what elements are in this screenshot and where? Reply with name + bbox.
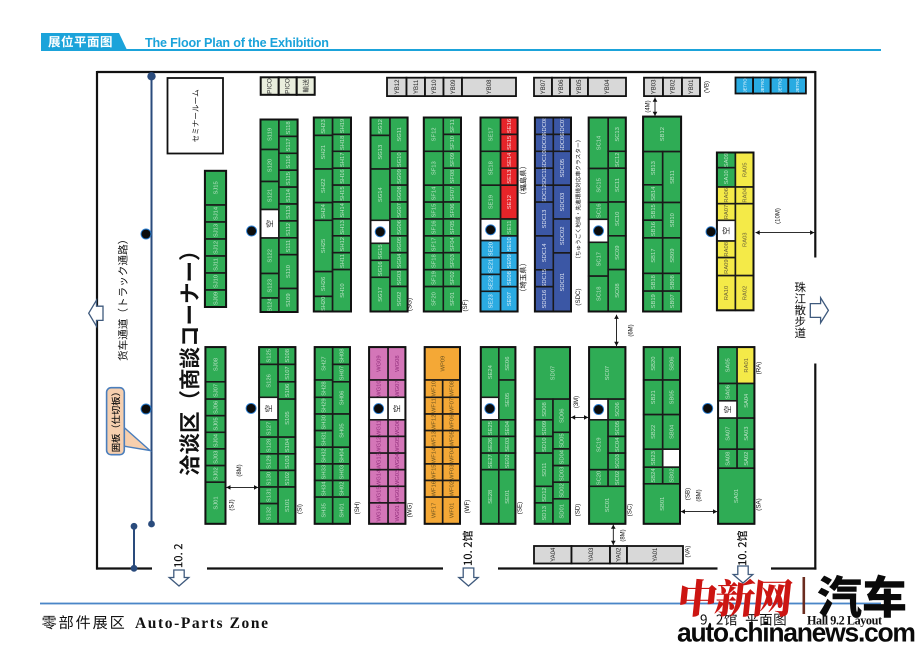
svg-text:(SJ): (SJ) xyxy=(229,499,236,510)
svg-text:SH12: SH12 xyxy=(340,237,346,252)
svg-text:S104: S104 xyxy=(285,438,291,452)
svg-text:SF07: SF07 xyxy=(450,187,456,201)
svg-text:S126: S126 xyxy=(267,374,273,388)
svg-text:JETRO: JETRO xyxy=(742,78,747,93)
svg-text:WG14: WG14 xyxy=(377,469,383,486)
svg-text:YB12: YB12 xyxy=(395,79,401,94)
svg-text:SH29: SH29 xyxy=(322,398,328,413)
svg-text:SF16: SF16 xyxy=(432,220,438,234)
svg-text:SB17: SB17 xyxy=(651,249,657,263)
svg-text:SDC05: SDC05 xyxy=(560,159,566,178)
svg-text:SH14: SH14 xyxy=(340,202,346,217)
svg-text:WF14: WF14 xyxy=(432,447,438,463)
svg-text:WF15: WF15 xyxy=(432,464,438,479)
svg-text:SE08: SE08 xyxy=(507,271,513,285)
svg-text:SG12: SG12 xyxy=(378,119,384,134)
svg-text:SF04: SF04 xyxy=(450,236,456,251)
svg-text:(SF): (SF) xyxy=(462,299,469,311)
svg-text:WG09: WG09 xyxy=(377,355,383,371)
svg-text:S112: S112 xyxy=(286,223,292,236)
svg-text:S122: S122 xyxy=(268,249,274,263)
svg-text:SC04: SC04 xyxy=(615,437,621,452)
svg-text:WG04: WG04 xyxy=(395,452,401,469)
svg-text:S101: S101 xyxy=(285,499,291,513)
svg-text:SG13: SG13 xyxy=(378,145,384,160)
svg-text:S124: S124 xyxy=(268,297,274,311)
svg-text:S128: S128 xyxy=(267,439,273,453)
svg-text:SF03: SF03 xyxy=(450,254,456,268)
svg-text:SA04: SA04 xyxy=(744,393,750,408)
svg-text:SH10: SH10 xyxy=(340,283,346,298)
svg-text:SDC07: SDC07 xyxy=(560,117,566,136)
svg-text:(SC): (SC) xyxy=(627,504,634,517)
svg-text:SD11: SD11 xyxy=(542,463,548,477)
svg-text:SDC10: SDC10 xyxy=(542,150,548,169)
svg-text:SC15: SC15 xyxy=(597,178,603,193)
svg-text:SJ07: SJ07 xyxy=(213,384,219,397)
svg-text:SJ09: SJ09 xyxy=(214,292,220,305)
svg-text:S114: S114 xyxy=(286,188,292,202)
svg-text:WF10: WF10 xyxy=(432,381,438,396)
svg-text:WF13: WF13 xyxy=(432,431,438,446)
svg-text:WG15: WG15 xyxy=(377,486,383,502)
svg-text:SC07: SC07 xyxy=(605,366,611,381)
svg-text:SB09: SB09 xyxy=(670,249,676,263)
svg-text:SF14: SF14 xyxy=(432,186,438,201)
svg-text:SD10: SD10 xyxy=(542,438,548,453)
svg-text:(SG): (SG) xyxy=(407,298,414,311)
svg-text:SH01: SH01 xyxy=(339,503,345,518)
svg-text:SC08: SC08 xyxy=(615,283,621,298)
svg-text:SE20: SE20 xyxy=(489,242,495,256)
svg-text:SJ04: SJ04 xyxy=(213,433,219,447)
svg-text:S103: S103 xyxy=(285,455,291,469)
svg-text:WP09: WP09 xyxy=(440,356,446,372)
svg-text:RA06: RA06 xyxy=(724,188,730,203)
svg-text:S119: S119 xyxy=(268,128,274,141)
svg-text:SH20: SH20 xyxy=(321,297,327,312)
svg-text:SB16: SB16 xyxy=(651,222,657,236)
svg-text:SD07: SD07 xyxy=(550,366,556,381)
svg-text:S109: S109 xyxy=(286,293,292,307)
svg-text:YA03: YA03 xyxy=(589,547,595,562)
svg-text:SG02: SG02 xyxy=(397,292,403,307)
svg-text:SE07: SE07 xyxy=(507,292,513,306)
svg-text:(WG): (WG) xyxy=(407,503,414,518)
svg-text:SH24: SH24 xyxy=(321,203,327,218)
svg-text:SH03: SH03 xyxy=(339,465,345,480)
svg-text:SC10: SC10 xyxy=(615,212,621,227)
svg-text:SD05: SD05 xyxy=(560,433,566,448)
svg-text:S102: S102 xyxy=(285,472,291,486)
svg-text:SF15: SF15 xyxy=(432,204,438,218)
svg-text:(6M): (6M) xyxy=(629,324,635,336)
svg-text:SD06: SD06 xyxy=(560,408,566,423)
svg-text:SE14: SE14 xyxy=(507,152,513,167)
svg-text:SG11: SG11 xyxy=(397,127,403,141)
svg-text:SJ11: SJ11 xyxy=(214,258,220,271)
svg-text:SE12: SE12 xyxy=(507,195,513,209)
svg-text:SH17: SH17 xyxy=(340,153,346,168)
svg-text:SB10: SB10 xyxy=(670,213,676,227)
svg-text:SE23: SE23 xyxy=(489,294,495,308)
svg-text:SG06: SG06 xyxy=(397,220,403,235)
svg-text:SH32: SH32 xyxy=(322,448,328,463)
svg-text:WF04: WF04 xyxy=(449,447,455,463)
svg-text:Auto-Parts Zone: Auto-Parts Zone xyxy=(135,615,268,632)
svg-text:SA02: SA02 xyxy=(744,452,750,466)
svg-text:SH11: SH11 xyxy=(340,254,346,268)
svg-text:(4M): (4M) xyxy=(646,100,652,112)
svg-text:S131: S131 xyxy=(267,489,273,503)
svg-text:S117: S117 xyxy=(286,138,292,151)
svg-text:S111: S111 xyxy=(286,240,292,253)
svg-text:SH30: SH30 xyxy=(322,415,328,430)
svg-text:SJ05: SJ05 xyxy=(213,417,219,430)
svg-text:(SA): (SA) xyxy=(756,498,763,510)
svg-text:WG03: WG03 xyxy=(395,470,401,486)
svg-text:SB07: SB07 xyxy=(670,294,676,308)
svg-text:S106: S106 xyxy=(285,384,291,398)
svg-text:YB03: YB03 xyxy=(652,79,658,94)
svg-text:SG17: SG17 xyxy=(378,287,384,302)
svg-text:RA08: RA08 xyxy=(724,242,730,257)
svg-text:(SDC): (SDC) xyxy=(575,288,582,305)
svg-text:SA05: SA05 xyxy=(726,358,732,372)
svg-text:SH21: SH21 xyxy=(321,145,327,160)
svg-text:SC20: SC20 xyxy=(597,471,603,486)
svg-text:SH22: SH22 xyxy=(321,179,327,194)
svg-text:RA05: RA05 xyxy=(743,163,749,178)
svg-text:(SH): (SH) xyxy=(354,502,361,515)
svg-text:SA10: SA10 xyxy=(724,170,730,184)
svg-text:S121: S121 xyxy=(268,189,274,203)
svg-text:SF10: SF10 xyxy=(450,136,456,150)
svg-text:SB23: SB23 xyxy=(651,451,657,465)
svg-text:SB21: SB21 xyxy=(651,390,657,404)
svg-text:SH06: SH06 xyxy=(339,391,345,406)
svg-text:SG05: SG05 xyxy=(397,237,403,252)
svg-text:SE09: SE09 xyxy=(507,254,513,268)
svg-text:SDC15: SDC15 xyxy=(542,269,548,288)
svg-text:SH18: SH18 xyxy=(340,136,346,151)
svg-text:SE18: SE18 xyxy=(489,161,495,175)
svg-text:S125: S125 xyxy=(267,349,273,363)
svg-text:SB13: SB13 xyxy=(651,161,657,175)
svg-text:SH07: SH07 xyxy=(339,366,345,381)
svg-text:JETRO: JETRO xyxy=(778,78,783,93)
svg-text:SB19: SB19 xyxy=(651,294,657,308)
svg-text:SA08: SA08 xyxy=(726,452,732,466)
svg-text:RA02: RA02 xyxy=(743,286,749,301)
svg-text:SE01: SE01 xyxy=(505,490,511,504)
svg-text:PICO: PICO xyxy=(267,78,274,94)
svg-text:SC17: SC17 xyxy=(597,252,603,267)
svg-text:S130: S130 xyxy=(267,472,273,486)
svg-text:SC13: SC13 xyxy=(615,127,621,142)
svg-text:SH35: SH35 xyxy=(322,503,328,518)
svg-text:SJ14: SJ14 xyxy=(214,206,220,220)
svg-text:SA09: SA09 xyxy=(724,153,730,167)
svg-text:SC11: SC11 xyxy=(615,178,621,192)
svg-text:WG08: WG08 xyxy=(395,355,401,371)
svg-text:(SE): (SE) xyxy=(517,502,524,514)
svg-text:SH19: SH19 xyxy=(340,119,346,134)
svg-text:SDC12: SDC12 xyxy=(542,184,548,203)
svg-text:SH05: SH05 xyxy=(339,423,345,438)
svg-text:SDC16: SDC16 xyxy=(542,290,548,309)
svg-text:SD04: SD04 xyxy=(560,449,566,464)
svg-text:SDC09: SDC09 xyxy=(542,134,548,153)
svg-text:SA06: SA06 xyxy=(726,385,732,399)
svg-text:SD01: SD01 xyxy=(560,504,566,519)
svg-text:SH15: SH15 xyxy=(340,186,346,201)
svg-text:SE24: SE24 xyxy=(488,364,494,379)
svg-text:SC09: SC09 xyxy=(615,245,621,260)
svg-text:SDC11: SDC11 xyxy=(542,168,548,186)
svg-text:SE04: SE04 xyxy=(505,420,511,435)
svg-text:(8M): (8M) xyxy=(697,489,703,501)
svg-text:SB02: SB02 xyxy=(669,468,675,482)
svg-text:SB04: SB04 xyxy=(669,424,675,439)
svg-text:SDC02: SDC02 xyxy=(560,227,566,246)
svg-text:RA01: RA01 xyxy=(744,358,750,373)
svg-text:(RA): (RA) xyxy=(756,362,763,375)
svg-text:YB11: YB11 xyxy=(414,79,420,94)
svg-text:YA01: YA01 xyxy=(653,547,659,562)
svg-text:SH16: SH16 xyxy=(340,169,346,184)
svg-text:S107: S107 xyxy=(285,366,291,380)
svg-text:SB15: SB15 xyxy=(651,204,657,218)
svg-text:WF12: WF12 xyxy=(432,415,438,430)
svg-text:WF06: WF06 xyxy=(449,415,455,430)
svg-text:SB08: SB08 xyxy=(670,275,676,289)
svg-text:SF06: SF06 xyxy=(450,203,456,217)
svg-text:SJ06: SJ06 xyxy=(213,401,219,414)
svg-text:SH28: SH28 xyxy=(322,381,328,396)
svg-text:SF09: SF09 xyxy=(450,153,456,167)
svg-text:YB09: YB09 xyxy=(451,79,457,94)
svg-text:SB05: SB05 xyxy=(669,390,675,404)
svg-text:SC03: SC03 xyxy=(615,454,621,469)
svg-text:SE15: SE15 xyxy=(507,136,513,150)
svg-text:SDC06: SDC06 xyxy=(560,134,566,153)
svg-text:SD13: SD13 xyxy=(542,506,548,521)
svg-text:RA07: RA07 xyxy=(724,205,730,220)
svg-text:SD08: SD08 xyxy=(542,402,548,417)
svg-text:WF08: WF08 xyxy=(449,381,455,396)
svg-text:SC16: SC16 xyxy=(597,204,603,219)
svg-text:SF20: SF20 xyxy=(432,292,438,306)
svg-text:SH27: SH27 xyxy=(322,356,328,371)
svg-text:SH34: SH34 xyxy=(322,481,328,496)
svg-text:S116: S116 xyxy=(286,155,292,168)
svg-text:SE11: SE11 xyxy=(507,221,513,235)
svg-text:SC19: SC19 xyxy=(597,438,603,453)
svg-text:WG01: WG01 xyxy=(395,505,401,521)
svg-text:RA03: RA03 xyxy=(743,232,749,247)
svg-text:(3M): (3M) xyxy=(574,396,580,408)
svg-text:SDC01: SDC01 xyxy=(560,273,566,292)
svg-text:WF02: WF02 xyxy=(449,481,455,496)
svg-text:S113: S113 xyxy=(286,206,292,219)
svg-text:WG10: WG10 xyxy=(377,380,383,396)
svg-text:SJ12: SJ12 xyxy=(214,241,220,254)
svg-text:SJ08: SJ08 xyxy=(213,358,219,371)
svg-text:WF16: WF16 xyxy=(432,481,438,496)
svg-text:SC05: SC05 xyxy=(615,421,621,436)
svg-text:SB24: SB24 xyxy=(651,468,657,483)
svg-text:SG03: SG03 xyxy=(397,271,403,286)
svg-text:SG16: SG16 xyxy=(378,261,384,276)
svg-text:SB18: SB18 xyxy=(651,275,657,289)
svg-text:SH13: SH13 xyxy=(340,220,346,235)
svg-text:(8M): (8M) xyxy=(621,529,627,541)
svg-text:SE27: SE27 xyxy=(488,454,494,468)
svg-text:SDC13: SDC13 xyxy=(542,210,548,229)
svg-text:SE05: SE05 xyxy=(505,393,511,407)
svg-text:SD09: SD09 xyxy=(542,421,548,436)
svg-text:SB01: SB01 xyxy=(660,497,666,511)
svg-text:YB07: YB07 xyxy=(541,79,547,94)
svg-text:S132: S132 xyxy=(267,507,273,521)
svg-text:SG10: SG10 xyxy=(397,152,403,167)
svg-text:SG14: SG14 xyxy=(378,187,384,203)
svg-text:SA03: SA03 xyxy=(744,427,750,441)
svg-text:SE19: SE19 xyxy=(489,195,495,209)
svg-text:SB14: SB14 xyxy=(651,186,657,201)
svg-text:WG11: WG11 xyxy=(377,420,383,436)
svg-text:SD03: SD03 xyxy=(560,467,566,482)
svg-text:RA04: RA04 xyxy=(743,187,749,202)
svg-text:SG09: SG09 xyxy=(397,169,403,184)
svg-text:YB08: YB08 xyxy=(487,79,493,94)
svg-text:SA07: SA07 xyxy=(726,427,732,441)
svg-text:SG04: SG04 xyxy=(397,253,403,269)
svg-text:SB11: SB11 xyxy=(670,170,676,184)
svg-text:SH23: SH23 xyxy=(321,119,327,134)
svg-text:SC01: SC01 xyxy=(605,498,611,513)
svg-text:SB12: SB12 xyxy=(660,127,666,141)
svg-text:WF05: WF05 xyxy=(449,431,455,446)
svg-text:WG06: WG06 xyxy=(395,420,401,436)
svg-text:SE17: SE17 xyxy=(489,127,495,141)
svg-text:JETRO: JETRO xyxy=(760,78,765,93)
svg-text:SJ03: SJ03 xyxy=(213,451,219,464)
svg-text:SB22: SB22 xyxy=(651,425,657,439)
svg-text:SE06: SE06 xyxy=(505,357,511,371)
svg-text:SH31: SH31 xyxy=(322,432,328,447)
svg-text:SF19: SF19 xyxy=(432,271,438,285)
svg-text:S120: S120 xyxy=(268,159,274,173)
svg-text:SF01: SF01 xyxy=(450,292,456,306)
svg-text:YA02: YA02 xyxy=(617,547,623,562)
svg-text:SF13: SF13 xyxy=(432,161,438,175)
svg-text:WG13: WG13 xyxy=(377,453,383,469)
svg-text:The Floor Plan of the Exhibiti: The Floor Plan of the Exhibition xyxy=(145,36,329,50)
svg-text:SE21: SE21 xyxy=(489,259,495,273)
svg-text:SH33: SH33 xyxy=(322,465,328,480)
svg-text:SE25: SE25 xyxy=(488,421,494,435)
svg-text:RA10: RA10 xyxy=(724,286,730,301)
svg-text:WF11: WF11 xyxy=(432,398,438,413)
svg-text:SD02: SD02 xyxy=(560,483,566,498)
svg-text:SH26: SH26 xyxy=(321,277,327,292)
svg-text:SE02: SE02 xyxy=(505,454,511,468)
svg-text:SF08: SF08 xyxy=(450,170,456,184)
svg-text:(8M): (8M) xyxy=(237,464,243,476)
svg-text:SH25: SH25 xyxy=(321,239,327,254)
svg-text:S118: S118 xyxy=(286,121,292,134)
svg-text:SC02: SC02 xyxy=(615,471,621,486)
svg-text:SD12: SD12 xyxy=(542,487,548,502)
svg-text:SE22: SE22 xyxy=(489,276,495,290)
svg-text:SG08: SG08 xyxy=(397,186,403,201)
svg-text:SB20: SB20 xyxy=(651,357,657,371)
svg-text:SF02: SF02 xyxy=(450,271,456,285)
svg-text:WG05: WG05 xyxy=(395,437,401,453)
svg-text:SC18: SC18 xyxy=(597,287,603,302)
svg-text:SJ01: SJ01 xyxy=(213,496,219,509)
svg-text:SG15: SG15 xyxy=(378,244,384,259)
svg-text:SE28: SE28 xyxy=(488,490,494,504)
svg-text:S115: S115 xyxy=(286,172,292,185)
svg-text:WG02: WG02 xyxy=(395,486,401,502)
svg-text:SDC08: SDC08 xyxy=(542,117,548,136)
svg-text:SC12: SC12 xyxy=(615,153,621,168)
svg-text:S123: S123 xyxy=(268,279,274,293)
svg-text:(10M): (10M) xyxy=(776,208,782,224)
svg-text:WF17: WF17 xyxy=(432,503,438,518)
svg-text:YA04: YA04 xyxy=(551,547,557,562)
svg-text:SE13: SE13 xyxy=(507,170,513,184)
svg-text:SE16: SE16 xyxy=(507,119,513,133)
svg-text:SG07: SG07 xyxy=(397,203,403,218)
svg-text:S105: S105 xyxy=(285,411,291,425)
svg-text:auto.chinanews.com: auto.chinanews.com xyxy=(677,618,916,648)
svg-text:SH04: SH04 xyxy=(339,447,345,462)
svg-text:SA01: SA01 xyxy=(734,489,740,503)
svg-text:(SD): (SD) xyxy=(575,504,582,517)
svg-text:WF07: WF07 xyxy=(449,398,455,413)
svg-text:(VB): (VB) xyxy=(705,81,711,93)
svg-text:YB06: YB06 xyxy=(559,79,565,94)
svg-text:SJ10: SJ10 xyxy=(214,275,220,288)
svg-text:RA09: RA09 xyxy=(724,259,730,274)
svg-text:S129: S129 xyxy=(267,455,273,469)
svg-text:SB06: SB06 xyxy=(669,357,675,371)
svg-text:YB05: YB05 xyxy=(577,79,583,94)
svg-text:WF01: WF01 xyxy=(449,503,455,518)
svg-text:PICO: PICO xyxy=(285,78,292,94)
svg-text:SH02: SH02 xyxy=(339,482,345,497)
svg-text:SF18: SF18 xyxy=(432,254,438,268)
svg-text:SDC03: SDC03 xyxy=(560,193,566,212)
svg-text:WF03: WF03 xyxy=(449,464,455,479)
svg-text:SE03: SE03 xyxy=(505,438,511,452)
svg-text:(SB): (SB) xyxy=(685,488,692,500)
svg-text:SJ13: SJ13 xyxy=(214,224,220,237)
svg-text:(SI): (SI) xyxy=(297,504,304,514)
svg-text:S108: S108 xyxy=(285,349,291,363)
svg-text:SH08: SH08 xyxy=(339,349,345,364)
svg-text:S127: S127 xyxy=(267,422,273,436)
svg-text:YB02: YB02 xyxy=(671,79,677,94)
svg-text:SJ15: SJ15 xyxy=(214,181,220,194)
svg-text:(WF): (WF) xyxy=(464,500,471,514)
svg-text:YB10: YB10 xyxy=(432,79,438,94)
svg-text:JETRO: JETRO xyxy=(795,78,800,93)
